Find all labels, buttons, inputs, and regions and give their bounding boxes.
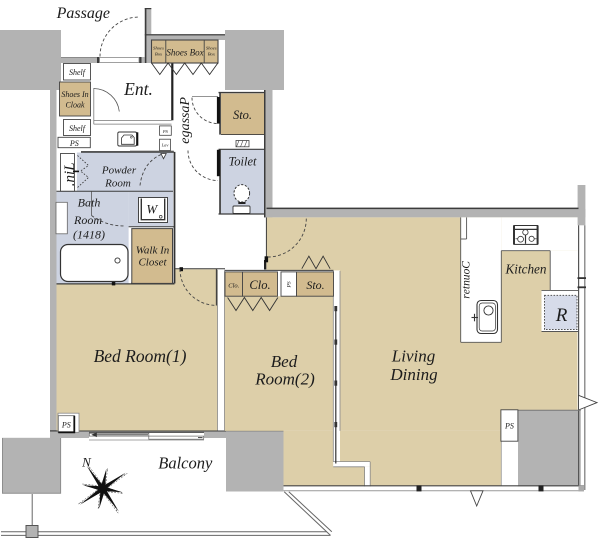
- svg-text:a: a: [178, 106, 193, 113]
- svg-text:Sto.: Sto.: [233, 108, 252, 122]
- svg-text:(1418): (1418): [73, 228, 105, 242]
- svg-text:Shelf: Shelf: [69, 124, 87, 133]
- svg-text:Shoes In: Shoes In: [61, 90, 88, 99]
- svg-text:L: L: [62, 162, 78, 171]
- svg-text:Shoes Box: Shoes Box: [166, 47, 203, 57]
- svg-text:P: P: [178, 97, 193, 107]
- svg-text:R: R: [555, 305, 568, 326]
- svg-text:r: r: [461, 294, 473, 299]
- svg-text:Toilet: Toilet: [228, 155, 257, 169]
- svg-text:Balcony: Balcony: [158, 454, 213, 473]
- svg-text:Closet: Closet: [138, 257, 167, 269]
- svg-text:Bed: Bed: [271, 352, 298, 371]
- svg-text:W: W: [146, 202, 158, 217]
- svg-text:PS: PS: [287, 281, 293, 288]
- svg-text:n: n: [62, 175, 78, 183]
- svg-text:Bath: Bath: [78, 196, 101, 210]
- svg-text:a: a: [178, 123, 193, 130]
- svg-text:PS: PS: [162, 129, 169, 134]
- svg-text:e: e: [178, 137, 193, 143]
- svg-text:g: g: [178, 130, 193, 137]
- svg-text:Walk In: Walk In: [136, 245, 170, 257]
- svg-text:n: n: [461, 280, 473, 286]
- svg-text:Shoes: Shoes: [153, 46, 164, 51]
- svg-text:Room: Room: [73, 213, 102, 227]
- svg-text:Living: Living: [391, 347, 435, 366]
- svg-text:Passage: Passage: [56, 5, 110, 22]
- svg-text:e: e: [461, 289, 473, 294]
- svg-text:o: o: [461, 268, 473, 274]
- svg-text:N: N: [81, 455, 92, 470]
- svg-text:Cloak: Cloak: [65, 101, 85, 110]
- svg-text:Clo.: Clo.: [228, 283, 239, 290]
- svg-text:Box: Box: [155, 52, 162, 57]
- svg-text:Shoes: Shoes: [206, 46, 217, 51]
- svg-text:PS: PS: [69, 139, 79, 148]
- svg-text:Lav: Lav: [161, 143, 169, 148]
- svg-text:PS: PS: [504, 422, 514, 431]
- svg-text:Kitchen: Kitchen: [504, 262, 546, 277]
- svg-text:Room(2): Room(2): [254, 370, 315, 389]
- svg-text:Ent.: Ent.: [123, 79, 153, 99]
- svg-text:s: s: [178, 112, 193, 118]
- svg-text:Shelf: Shelf: [69, 68, 87, 77]
- svg-text:Sto.: Sto.: [306, 278, 324, 292]
- svg-text:PS: PS: [61, 421, 71, 430]
- svg-text:.: .: [62, 183, 78, 187]
- svg-text:C: C: [461, 261, 473, 269]
- svg-text:Powder: Powder: [101, 165, 137, 177]
- svg-text:i: i: [62, 171, 78, 175]
- svg-text:Box: Box: [208, 52, 215, 57]
- svg-text:Bed Room(1): Bed Room(1): [94, 346, 187, 366]
- svg-text:s: s: [178, 117, 193, 123]
- svg-text:u: u: [461, 274, 473, 280]
- svg-text:Clo.: Clo.: [249, 278, 270, 292]
- svg-text:Room: Room: [104, 178, 131, 190]
- svg-text:Dining: Dining: [389, 365, 437, 384]
